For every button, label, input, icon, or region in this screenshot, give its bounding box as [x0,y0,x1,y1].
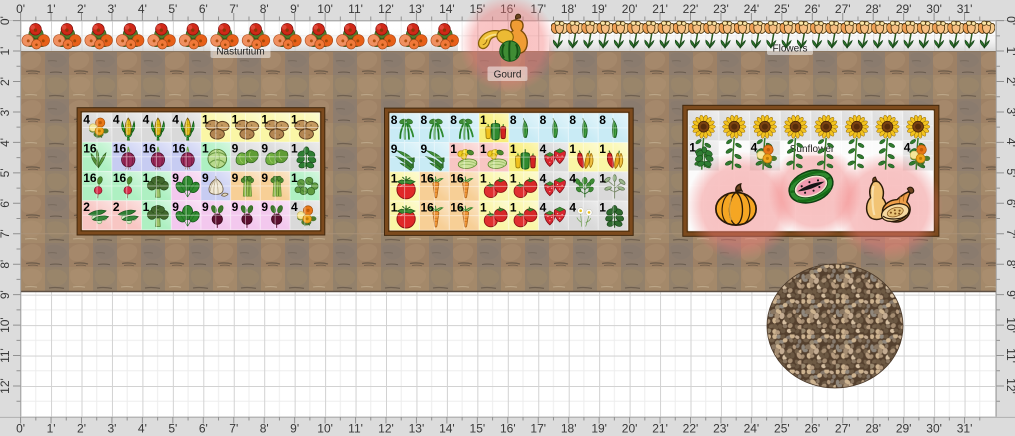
svg-text:0': 0' [1004,16,1015,25]
svg-text:1: 1 [599,142,606,156]
svg-text:1: 1 [480,200,487,214]
svg-text:28': 28' [865,422,881,436]
svg-text:Gourd: Gourd [494,70,522,81]
svg-text:12': 12' [378,2,394,16]
svg-text:1: 1 [143,200,150,214]
svg-text:4': 4' [0,138,12,147]
svg-text:7': 7' [229,2,238,16]
svg-text:4: 4 [143,112,150,126]
svg-text:1: 1 [261,112,268,126]
svg-text:1': 1' [0,47,12,56]
svg-text:2': 2' [0,77,12,86]
svg-text:12': 12' [0,378,12,394]
svg-text:16: 16 [450,200,464,214]
svg-text:4': 4' [1004,138,1015,147]
svg-text:16: 16 [450,171,464,185]
svg-text:20': 20' [622,422,638,436]
svg-text:20': 20' [622,2,638,16]
svg-text:9': 9' [290,422,299,436]
svg-text:9: 9 [202,200,209,214]
svg-text:1: 1 [510,142,517,156]
svg-text:19': 19' [591,2,607,16]
svg-text:23': 23' [713,422,729,436]
svg-text:4: 4 [83,112,90,126]
svg-text:4: 4 [569,171,576,185]
svg-text:1: 1 [569,142,576,156]
svg-text:1': 1' [1004,47,1015,56]
svg-text:5': 5' [1004,168,1015,177]
svg-text:6': 6' [1004,199,1015,208]
svg-text:11': 11' [0,348,12,363]
svg-text:1: 1 [202,142,209,156]
svg-text:4: 4 [540,200,547,214]
svg-text:9: 9 [232,171,239,185]
svg-text:16: 16 [420,200,434,214]
svg-text:4: 4 [540,142,547,156]
svg-text:25': 25' [774,422,790,436]
svg-text:11': 11' [348,422,363,436]
svg-text:2: 2 [113,200,120,214]
svg-text:16: 16 [113,171,127,185]
svg-text:25': 25' [774,2,790,16]
svg-text:9: 9 [420,142,427,156]
svg-text:4: 4 [540,171,547,185]
svg-text:8: 8 [391,113,398,127]
svg-text:30': 30' [926,422,942,436]
svg-text:3': 3' [0,107,12,116]
svg-text:4: 4 [569,200,576,214]
svg-text:10': 10' [317,422,333,436]
svg-text:9': 9' [290,2,299,16]
svg-text:16: 16 [420,171,434,185]
svg-text:9: 9 [261,171,268,185]
svg-text:21': 21' [652,2,668,16]
svg-text:9: 9 [261,142,268,156]
svg-text:1: 1 [291,112,298,126]
svg-text:0': 0' [16,2,25,16]
svg-text:0': 0' [0,16,12,25]
svg-text:8': 8' [260,422,269,436]
svg-text:12': 12' [378,422,394,436]
svg-text:16: 16 [143,142,157,156]
svg-text:13': 13' [409,422,425,436]
svg-text:12': 12' [1004,378,1015,394]
svg-text:4: 4 [172,112,179,126]
svg-text:1: 1 [450,142,457,156]
svg-text:8': 8' [1004,260,1015,269]
svg-text:23': 23' [713,2,729,16]
svg-text:10': 10' [1004,317,1015,333]
svg-text:3': 3' [107,2,116,16]
svg-text:1: 1 [391,171,398,185]
svg-text:15': 15' [470,422,486,436]
svg-text:11': 11' [348,2,363,16]
svg-text:8: 8 [599,113,606,127]
svg-text:1: 1 [480,142,487,156]
svg-text:8': 8' [260,2,269,16]
svg-text:16: 16 [113,142,127,156]
svg-text:22': 22' [683,422,699,436]
svg-text:6': 6' [199,2,208,16]
svg-text:18': 18' [561,422,577,436]
svg-text:4: 4 [291,200,298,214]
svg-text:6': 6' [199,422,208,436]
svg-text:2': 2' [77,2,86,16]
svg-text:9: 9 [202,171,209,185]
svg-text:21': 21' [652,422,668,436]
svg-text:1': 1' [47,2,56,16]
svg-text:3': 3' [1004,107,1015,116]
svg-text:9: 9 [232,142,239,156]
svg-text:5': 5' [168,2,177,16]
svg-text:24': 24' [744,2,760,16]
svg-text:0': 0' [16,422,25,436]
svg-text:14': 14' [439,2,455,16]
svg-text:8: 8 [569,113,576,127]
svg-text:29': 29' [896,422,912,436]
svg-text:1': 1' [47,422,56,436]
svg-text:8: 8 [450,113,457,127]
svg-text:28': 28' [865,2,881,16]
svg-text:7': 7' [1004,229,1015,238]
svg-text:11': 11' [1004,348,1015,363]
svg-text:1: 1 [291,171,298,185]
svg-text:1: 1 [391,200,398,214]
svg-text:16': 16' [500,422,516,436]
svg-text:9: 9 [391,142,398,156]
svg-text:7': 7' [0,229,12,238]
svg-text:13': 13' [409,2,425,16]
svg-text:27': 27' [835,422,851,436]
svg-text:27': 27' [835,2,851,16]
svg-text:8: 8 [540,113,547,127]
svg-text:17': 17' [530,422,546,436]
svg-text:5': 5' [0,168,12,177]
svg-text:16: 16 [172,142,186,156]
svg-text:1: 1 [143,171,150,185]
svg-text:1: 1 [480,113,487,127]
svg-text:1: 1 [599,200,606,214]
svg-text:16: 16 [83,142,97,156]
svg-text:9: 9 [261,200,268,214]
svg-text:10': 10' [0,317,12,333]
svg-text:9': 9' [0,290,12,299]
svg-text:8: 8 [420,113,427,127]
svg-text:2': 2' [1004,77,1015,86]
svg-text:5': 5' [168,422,177,436]
svg-text:1: 1 [510,171,517,185]
svg-text:26': 26' [804,2,820,16]
svg-text:1: 1 [202,112,209,126]
svg-text:14': 14' [439,422,455,436]
svg-text:16: 16 [83,171,97,185]
svg-text:4: 4 [113,112,120,126]
svg-text:1: 1 [480,171,487,185]
svg-text:7': 7' [229,422,238,436]
svg-text:2': 2' [77,422,86,436]
svg-text:9: 9 [172,171,179,185]
svg-text:19': 19' [591,422,607,436]
svg-text:1: 1 [510,200,517,214]
svg-text:30': 30' [926,2,942,16]
svg-text:2: 2 [83,200,90,214]
svg-text:1: 1 [291,142,298,156]
svg-text:4': 4' [138,2,147,16]
svg-text:3': 3' [107,422,116,436]
svg-text:31': 31' [957,422,973,436]
svg-text:8: 8 [510,113,517,127]
svg-text:31': 31' [957,2,973,16]
svg-text:8': 8' [0,260,12,269]
svg-text:29': 29' [896,2,912,16]
svg-text:24': 24' [744,422,760,436]
svg-text:1: 1 [599,171,606,185]
svg-text:9: 9 [172,200,179,214]
svg-text:4': 4' [138,422,147,436]
svg-text:26': 26' [804,422,820,436]
svg-text:9': 9' [1004,290,1015,299]
svg-text:6': 6' [0,199,12,208]
svg-text:1: 1 [232,112,239,126]
svg-text:10': 10' [317,2,333,16]
svg-text:18': 18' [561,2,577,16]
svg-text:9: 9 [232,200,239,214]
svg-text:22': 22' [683,2,699,16]
